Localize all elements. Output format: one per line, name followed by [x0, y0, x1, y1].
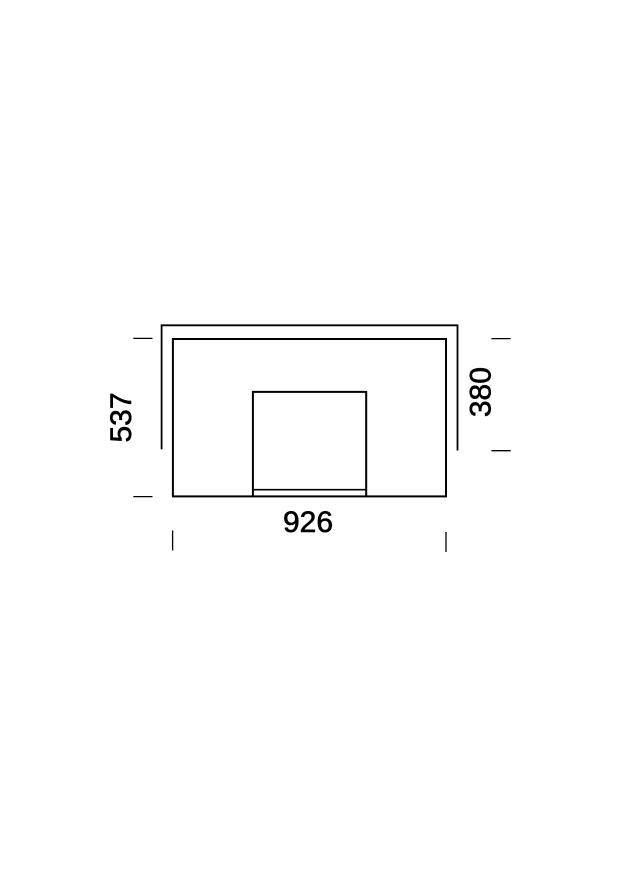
svg-text:537: 537 — [105, 392, 138, 442]
svg-text:926: 926 — [283, 506, 333, 539]
svg-text:380: 380 — [464, 367, 497, 417]
